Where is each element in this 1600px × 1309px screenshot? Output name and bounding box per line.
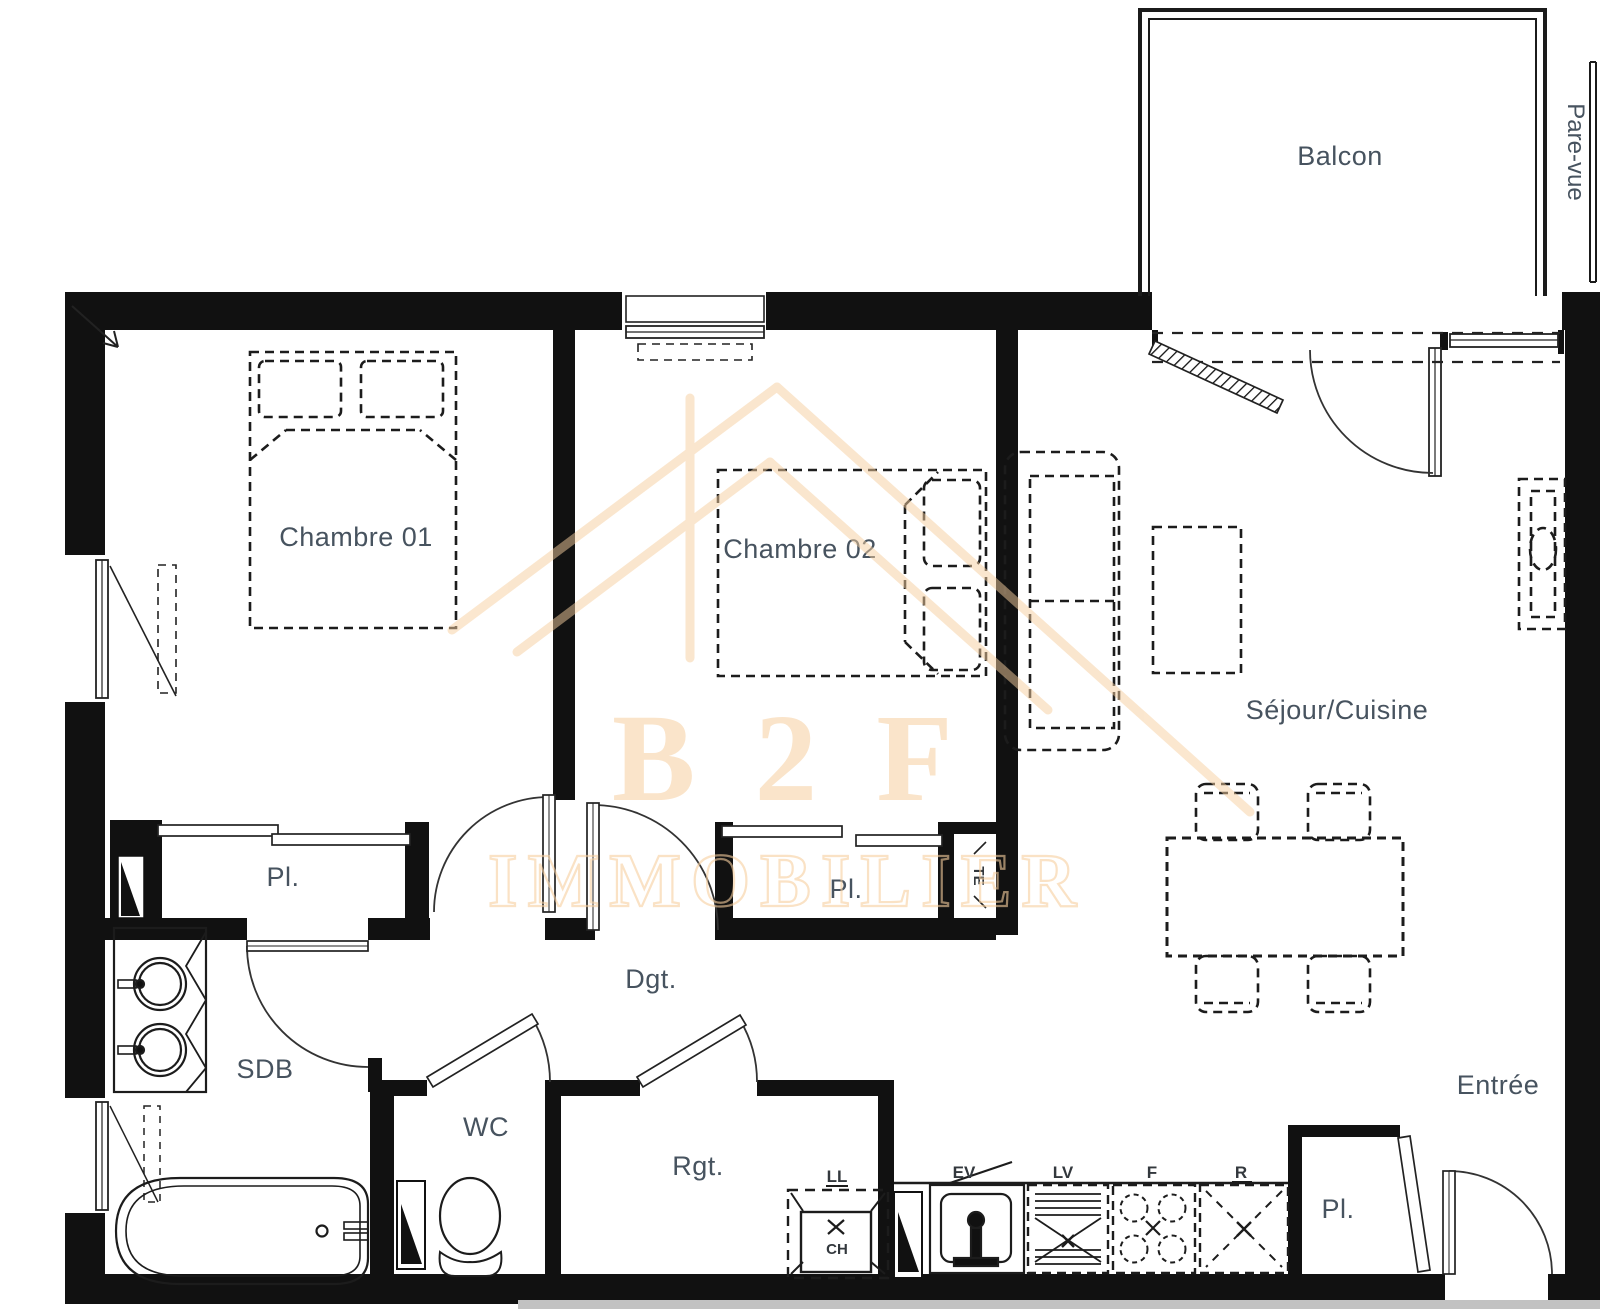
room-label-balcony: Balcon (1297, 141, 1383, 171)
room-label-wc: WC (463, 1112, 509, 1142)
label-washing-machine: LL (827, 1167, 848, 1186)
toilet-icon (440, 1178, 502, 1276)
sofa-icon (1005, 452, 1119, 750)
page-edge (518, 1300, 1600, 1309)
label-kitchen-sink: EV (953, 1163, 976, 1182)
watermark-brand: B 2 F (612, 690, 967, 828)
room-label-closet1: Pl. (266, 862, 299, 892)
coffee-table-icon (1153, 527, 1241, 673)
watermark-tagline: IMMOBILIER (488, 839, 1086, 923)
room-label-bedroom1: Chambre 01 (279, 522, 433, 552)
bed-icon (250, 352, 456, 628)
floor-plan-svg: Balcon Pare-vue Chambre 01 Chambre 02 Sé… (0, 0, 1600, 1309)
label-water-heater: CH (826, 1241, 848, 1258)
label-fridge: R (1235, 1163, 1247, 1182)
dining-table-icon (1167, 784, 1403, 1012)
kitchen-sink-icon (930, 1162, 1024, 1273)
bed-icon (718, 470, 986, 676)
room-label-pare-vue: Pare-vue (1562, 103, 1589, 200)
room-label-entry: Entrée (1457, 1070, 1540, 1100)
dishwasher-icon (1028, 1185, 1108, 1273)
room-label-hallway: Dgt. (625, 964, 677, 994)
laundry-corner (788, 1182, 1252, 1278)
room-labels: Balcon Pare-vue Chambre 01 Chambre 02 Sé… (236, 103, 1589, 1224)
room-label-closet-entry: Pl. (1321, 1194, 1354, 1224)
bathroom-fixtures (114, 928, 501, 1284)
fridge-icon (1200, 1185, 1288, 1273)
room-label-storage: Rgt. (672, 1151, 724, 1181)
stove-icon (1113, 1185, 1195, 1273)
label-dishwasher: LV (1053, 1163, 1074, 1182)
sideboard-icon (1519, 479, 1565, 629)
vanity-icon (114, 928, 206, 1092)
floor-plan-page: Balcon Pare-vue Chambre 01 Chambre 02 Sé… (0, 0, 1600, 1309)
label-stove: F (1147, 1163, 1157, 1182)
room-label-living-kitchen: Séjour/Cuisine (1246, 695, 1429, 725)
room-label-bathroom: SDB (236, 1054, 293, 1084)
